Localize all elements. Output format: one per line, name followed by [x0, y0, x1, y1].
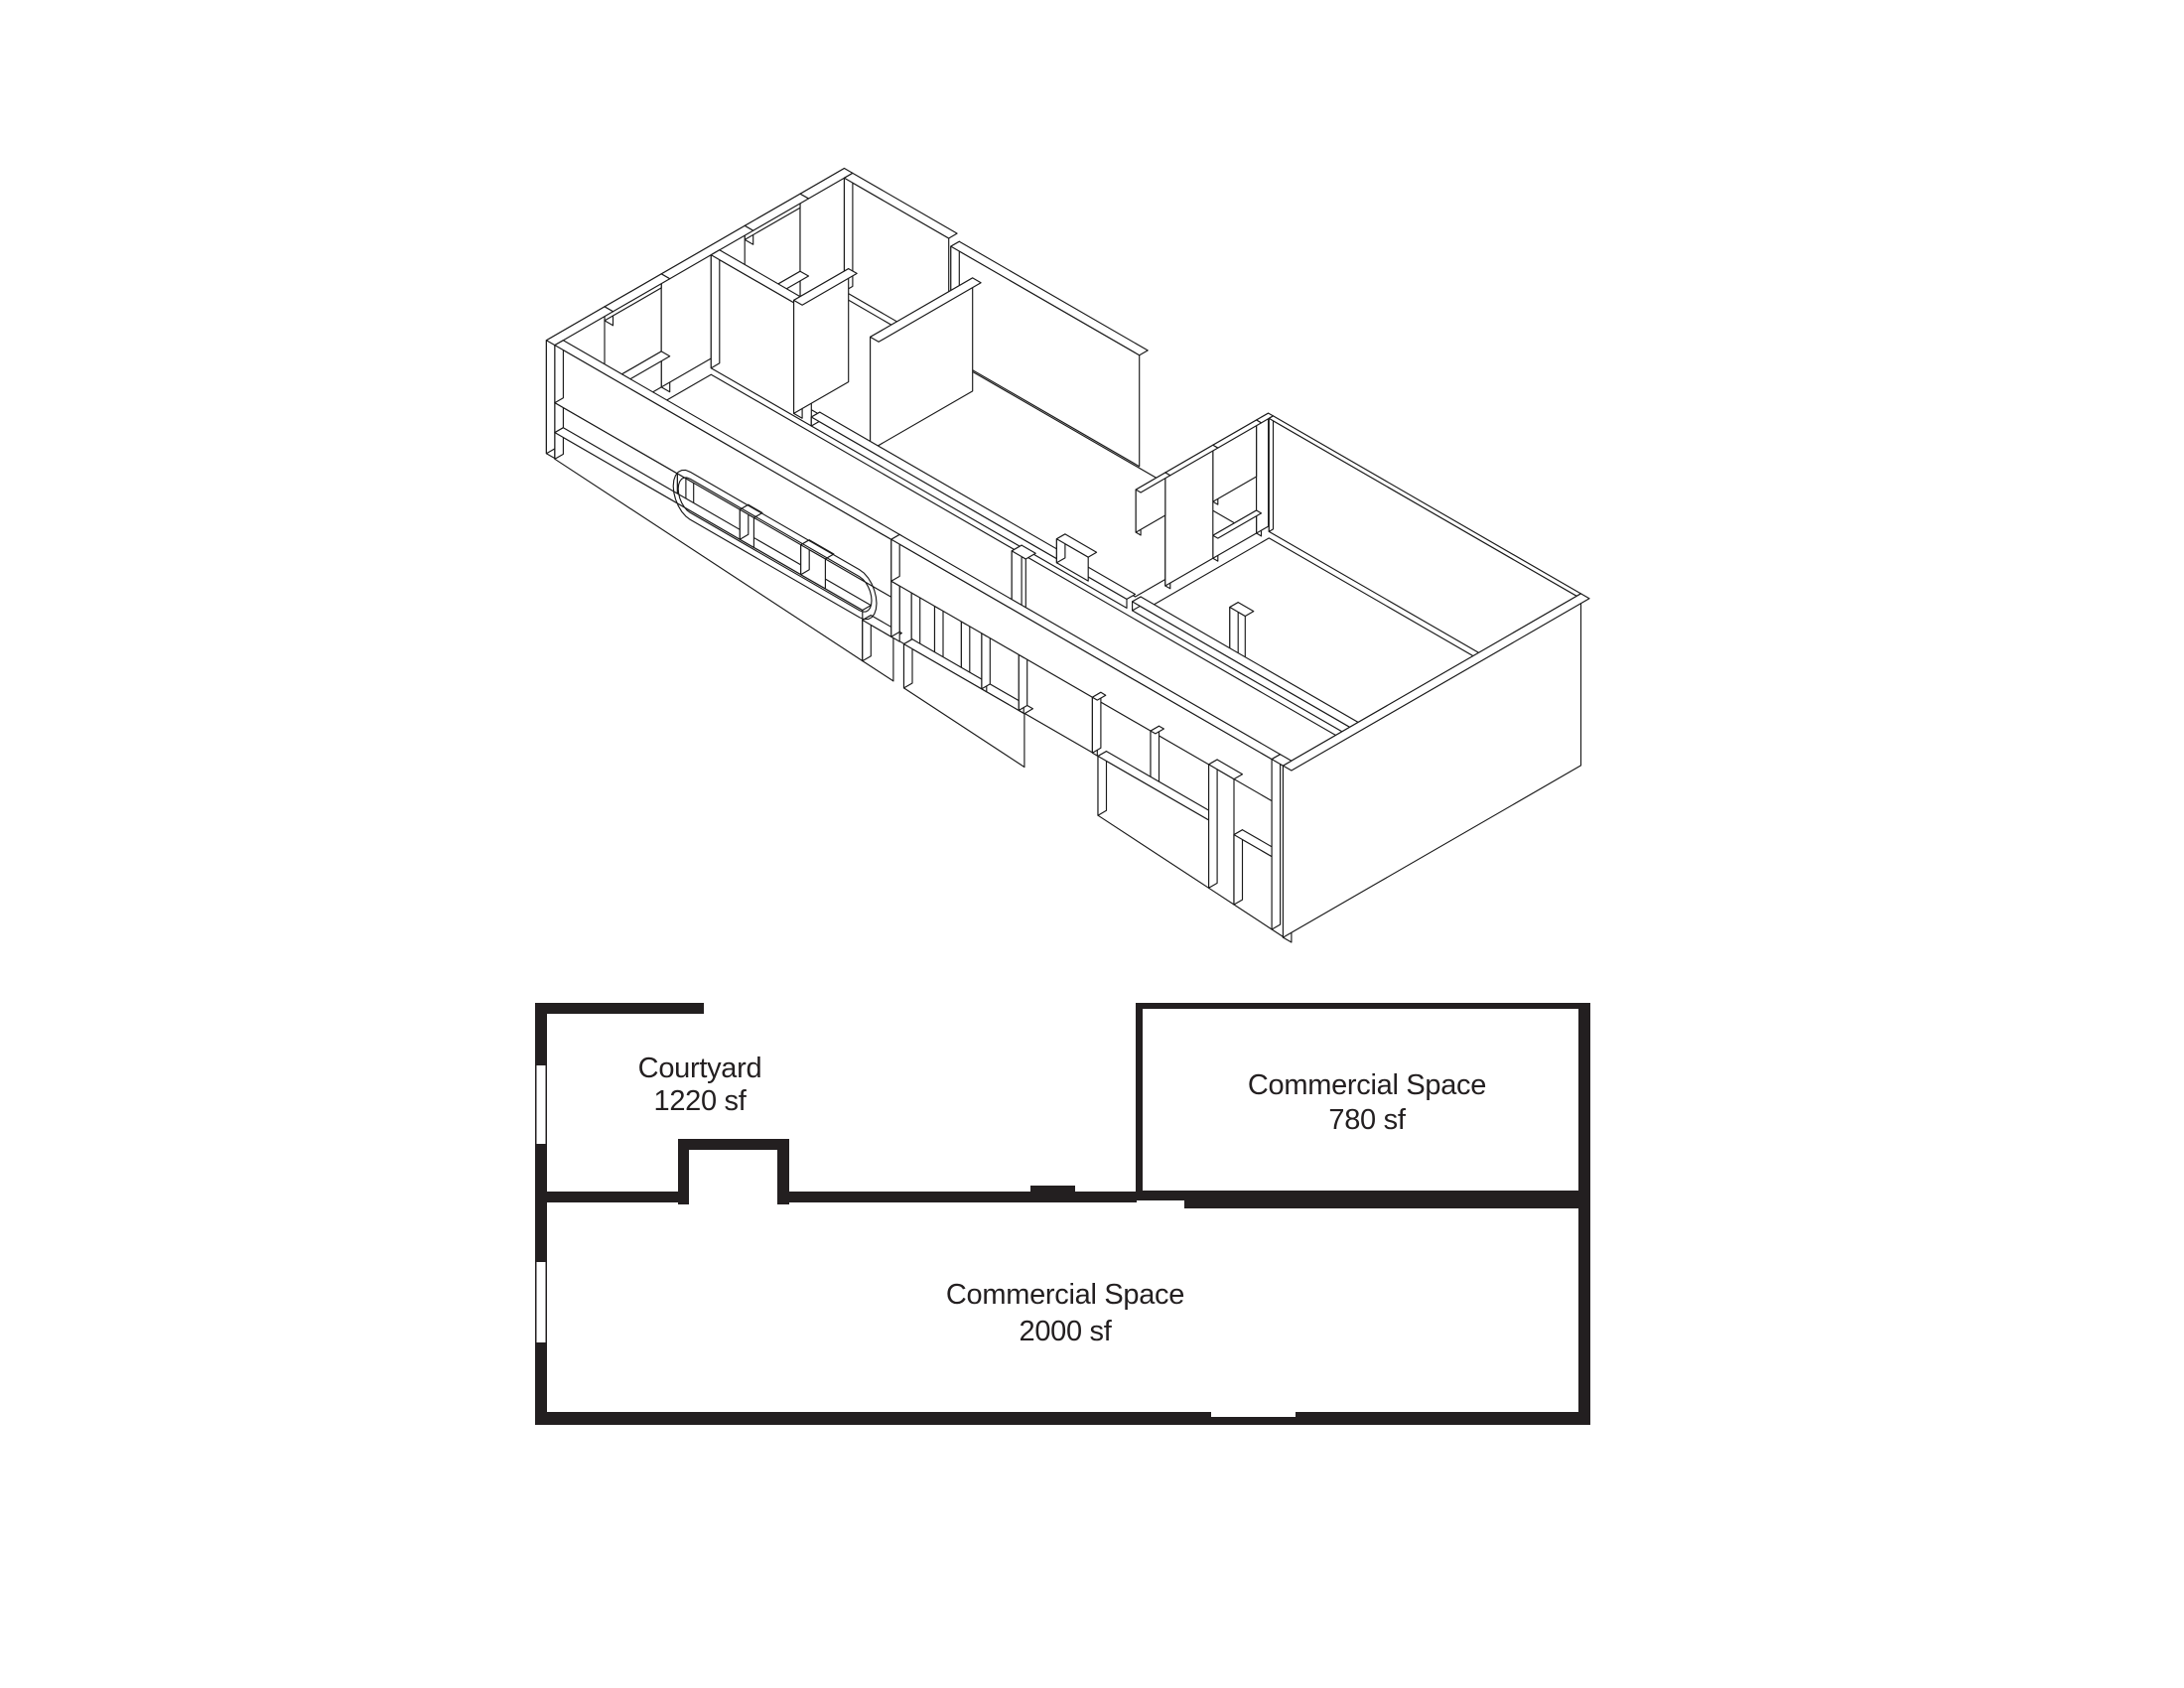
svg-text:Commercial Space: Commercial Space: [1248, 1069, 1486, 1101]
svg-text:1220 sf: 1220 sf: [653, 1085, 747, 1117]
svg-text:Commercial Space: Commercial Space: [946, 1279, 1184, 1311]
svg-text:780 sf: 780 sf: [1328, 1104, 1406, 1136]
svg-text:2000 sf: 2000 sf: [1019, 1316, 1112, 1347]
svg-text:Courtyard: Courtyard: [638, 1053, 762, 1084]
